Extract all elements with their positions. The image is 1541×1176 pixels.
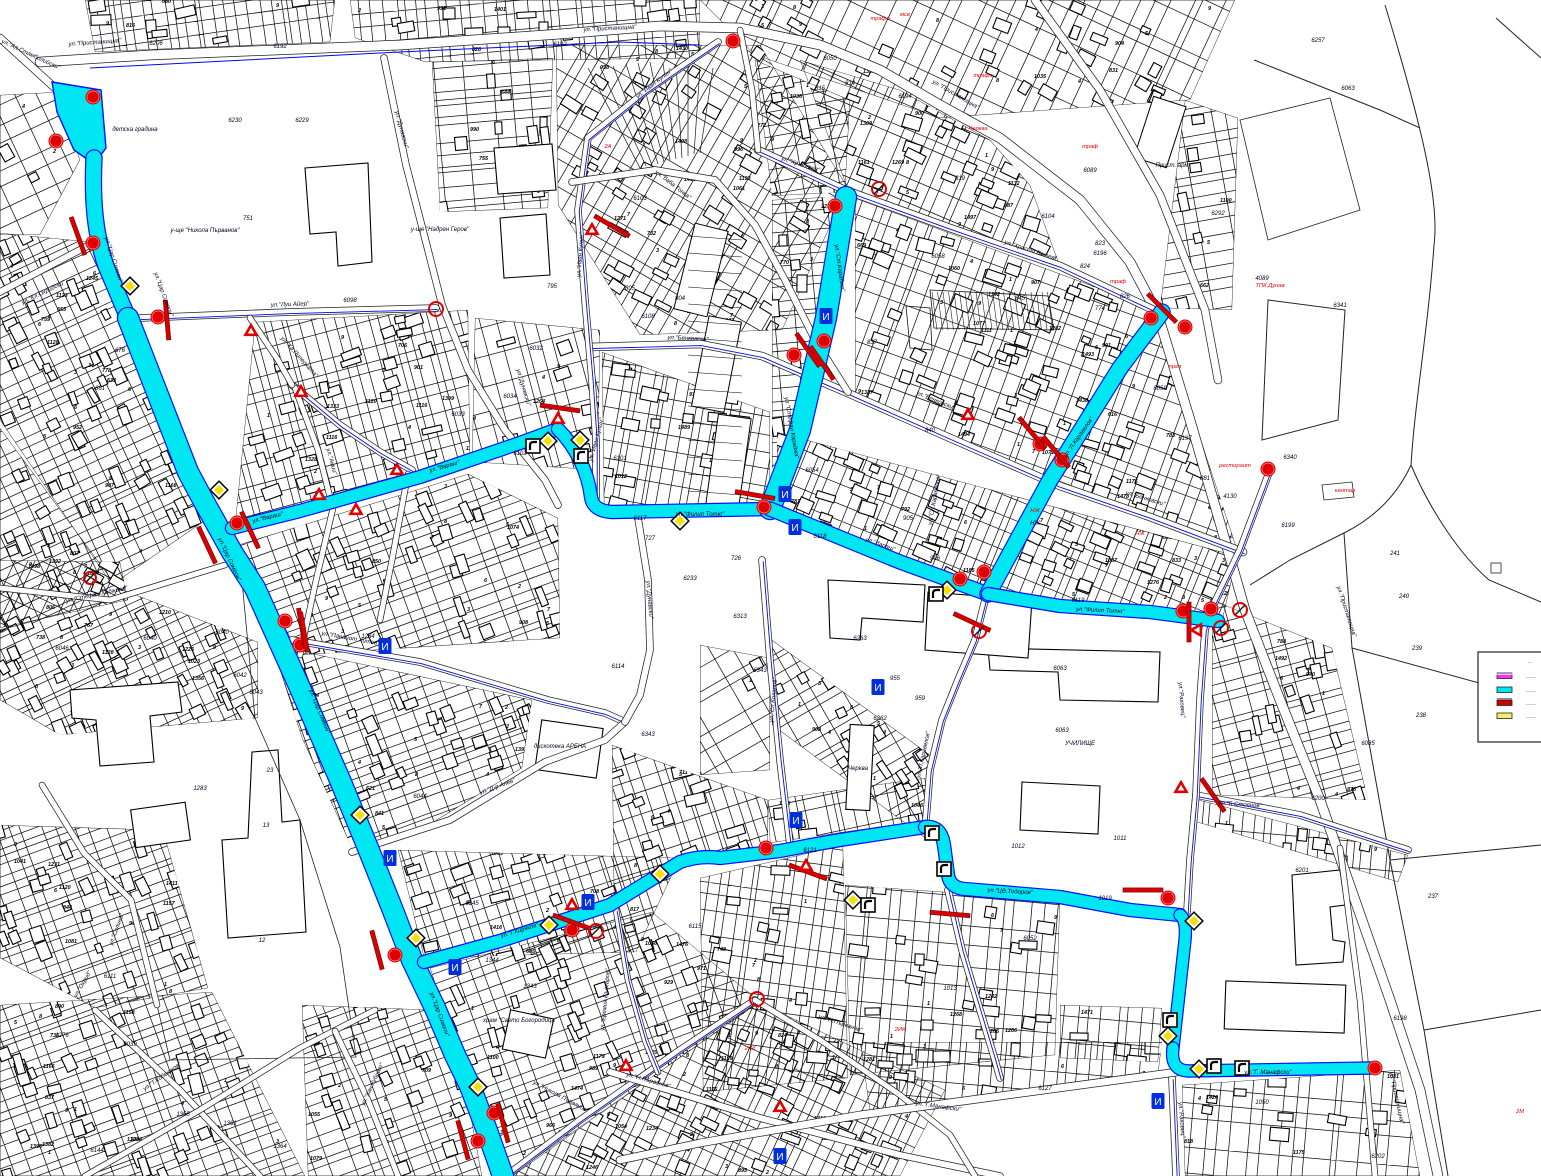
- svg-text:4: 4: [541, 375, 545, 381]
- svg-text:783: 783: [1166, 433, 1175, 439]
- svg-text:6034: 6034: [503, 394, 517, 400]
- svg-text:1242: 1242: [985, 994, 997, 1000]
- svg-text:6042: 6042: [233, 673, 247, 679]
- svg-text:1: 1: [985, 153, 988, 159]
- svg-text:1023: 1023: [188, 659, 200, 665]
- svg-text:4: 4: [1296, 786, 1300, 792]
- svg-text:876: 876: [1347, 787, 1357, 793]
- svg-text:239: 239: [1411, 646, 1423, 652]
- svg-text:4: 4: [357, 760, 361, 766]
- svg-text:900: 900: [915, 111, 924, 117]
- svg-text:1234: 1234: [646, 1126, 658, 1132]
- svg-text:6341: 6341: [1333, 303, 1346, 309]
- svg-text:1157: 1157: [163, 901, 176, 907]
- svg-text:8: 8: [755, 0, 758, 3]
- svg-text:8: 8: [775, 1064, 778, 1070]
- svg-text:6197: 6197: [1178, 436, 1192, 442]
- svg-text:1309: 1309: [860, 121, 872, 127]
- svg-text:996: 996: [734, 147, 744, 153]
- svg-text:6102: 6102: [513, 451, 527, 457]
- svg-text:807: 807: [70, 551, 80, 557]
- svg-text:616: 616: [1108, 412, 1118, 418]
- svg-text:И: И: [451, 963, 458, 974]
- svg-text:1036: 1036: [790, 94, 803, 100]
- svg-text:1245: 1245: [86, 276, 99, 282]
- svg-text:2: 2: [1163, 595, 1167, 601]
- svg-text:8: 8: [996, 78, 999, 84]
- svg-text:6111: 6111: [104, 974, 116, 980]
- svg-text:4: 4: [1034, 27, 1038, 33]
- svg-text:1282: 1282: [1049, 326, 1061, 332]
- svg-text:1056: 1056: [645, 941, 658, 947]
- svg-text:1492: 1492: [1275, 656, 1287, 662]
- svg-text:1132: 1132: [1008, 181, 1020, 187]
- svg-text:3: 3: [467, 607, 470, 613]
- svg-text:Прист. арм: Прист. арм: [1155, 163, 1188, 169]
- svg-text:816: 816: [126, 23, 136, 29]
- svg-text:1128: 1128: [47, 340, 59, 346]
- svg-text:6040: 6040: [143, 636, 157, 642]
- svg-text:1: 1: [1017, 442, 1020, 448]
- svg-text:9: 9: [29, 562, 32, 568]
- svg-text:2: 2: [689, 1132, 693, 1138]
- svg-text:1011: 1011: [1114, 836, 1127, 842]
- svg-text:6198: 6198: [1393, 1016, 1407, 1022]
- svg-text:2М: 2М: [1515, 1109, 1524, 1115]
- svg-text:241: 241: [1389, 551, 1400, 557]
- svg-text:6343: 6343: [753, 668, 767, 674]
- svg-text:844: 844: [63, 905, 72, 911]
- svg-text:9: 9: [755, 1031, 758, 1037]
- svg-text:841: 841: [375, 811, 384, 817]
- svg-text:738: 738: [36, 635, 45, 641]
- svg-text:905: 905: [903, 516, 914, 522]
- svg-text:1: 1: [1322, 691, 1325, 697]
- svg-text:1471: 1471: [1081, 1010, 1093, 1016]
- svg-text:4: 4: [827, 730, 831, 736]
- svg-text:1489: 1489: [678, 425, 690, 431]
- svg-text:8: 8: [415, 772, 418, 778]
- svg-text:прев: прев: [1169, 364, 1182, 370]
- svg-text:3: 3: [138, 645, 141, 651]
- svg-text:3: 3: [1222, 558, 1225, 564]
- svg-text:кантар: кантар: [1335, 488, 1356, 494]
- svg-text:1493: 1493: [1082, 352, 1094, 358]
- svg-text:1309: 1309: [442, 396, 454, 402]
- svg-text:2: 2: [867, 115, 871, 121]
- svg-text:дискотека АРЕНА: дискотека АРЕНА: [534, 744, 586, 750]
- svg-text:8: 8: [60, 635, 63, 641]
- svg-text:6054: 6054: [805, 468, 819, 474]
- svg-text:2ИК: 2ИК: [744, 1046, 756, 1052]
- svg-text:831: 831: [1109, 68, 1118, 74]
- svg-text:991: 991: [1102, 343, 1111, 349]
- svg-text:1168: 1168: [165, 483, 177, 489]
- svg-text:621: 621: [366, 786, 375, 792]
- svg-text:Черква: Черква: [968, 126, 988, 132]
- svg-text:6119: 6119: [1072, 598, 1086, 604]
- svg-text:И: И: [776, 1152, 783, 1163]
- svg-text:989: 989: [589, 1066, 598, 1072]
- svg-text:1: 1: [267, 413, 270, 419]
- svg-text:1: 1: [224, 1078, 227, 1084]
- svg-text:мсв: мсв: [900, 12, 910, 18]
- svg-text:8: 8: [686, 1053, 689, 1059]
- svg-text:4: 4: [21, 104, 25, 110]
- svg-text:9: 9: [213, 645, 216, 651]
- svg-text:3: 3: [382, 368, 385, 374]
- svg-text:1185: 1185: [963, 568, 976, 574]
- svg-text:6058: 6058: [931, 254, 945, 260]
- svg-text:9: 9: [613, 1063, 616, 1069]
- svg-text:1: 1: [48, 1150, 51, 1156]
- svg-text:1050: 1050: [1255, 1100, 1269, 1106]
- svg-text:9: 9: [1054, 915, 1057, 921]
- svg-text:2: 2: [522, 1151, 526, 1157]
- svg-text:1210: 1210: [159, 610, 171, 616]
- svg-text:УЧИЛИЩЕ: УЧИЛИЩЕ: [1064, 741, 1096, 747]
- svg-text:907: 907: [105, 483, 115, 489]
- svg-text:3: 3: [656, 248, 659, 254]
- svg-text:трафо: трафо: [870, 16, 890, 22]
- svg-text:1: 1: [74, 1107, 77, 1113]
- svg-text:644: 644: [501, 90, 510, 96]
- svg-text:1: 1: [927, 1001, 930, 1007]
- svg-text:1286: 1286: [1005, 1028, 1018, 1034]
- svg-text:6121: 6121: [803, 848, 816, 854]
- svg-text:1382: 1382: [42, 1142, 54, 1148]
- svg-text:9: 9: [241, 706, 244, 712]
- svg-text:814: 814: [845, 81, 856, 87]
- svg-text:3: 3: [74, 370, 77, 376]
- svg-text:9: 9: [771, 137, 774, 143]
- svg-text:8: 8: [936, 18, 939, 24]
- svg-text:1328: 1328: [305, 457, 317, 463]
- svg-text:1179: 1179: [593, 1054, 605, 1060]
- svg-text:3: 3: [500, 1130, 503, 1136]
- svg-text:4: 4: [1334, 792, 1338, 798]
- svg-text:1120: 1120: [59, 885, 71, 891]
- svg-text:Черква: Черква: [848, 766, 869, 772]
- svg-text:8: 8: [634, 863, 637, 869]
- svg-text:И: И: [381, 642, 388, 653]
- svg-text:9: 9: [1374, 847, 1377, 853]
- svg-text:2ИК: 2ИК: [894, 1027, 906, 1033]
- svg-text:6196: 6196: [1093, 251, 1107, 257]
- svg-text:8: 8: [557, 938, 560, 944]
- svg-text:676: 676: [115, 348, 126, 354]
- svg-text:907: 907: [1031, 280, 1041, 286]
- svg-text:6233: 6233: [683, 576, 697, 582]
- svg-text:1: 1: [890, 1034, 893, 1040]
- svg-text:795: 795: [547, 284, 558, 290]
- svg-text:6103: 6103: [633, 196, 647, 202]
- svg-text:1231: 1231: [48, 862, 60, 868]
- svg-text:6194: 6194: [898, 94, 912, 100]
- svg-text:661: 661: [95, 386, 105, 392]
- svg-text:2: 2: [337, 1083, 341, 1089]
- svg-text:4: 4: [9, 264, 13, 270]
- svg-text:1035: 1035: [1034, 74, 1047, 80]
- svg-text:1161: 1161: [858, 160, 870, 166]
- svg-text:12: 12: [259, 938, 266, 944]
- svg-text:6046: 6046: [55, 646, 69, 652]
- svg-text:...: ...: [1528, 659, 1532, 665]
- svg-text:.......: .......: [1526, 688, 1536, 694]
- svg-text:6229: 6229: [295, 118, 309, 124]
- svg-text:2: 2: [765, 1170, 769, 1176]
- svg-text:8: 8: [793, 5, 796, 11]
- svg-text:4: 4: [1077, 79, 1081, 85]
- svg-text:6118: 6118: [814, 534, 828, 540]
- svg-text:840: 840: [925, 428, 936, 434]
- svg-text:9: 9: [109, 612, 112, 618]
- svg-text:1: 1: [804, 899, 807, 905]
- svg-text:2: 2: [682, 1072, 686, 1078]
- svg-text:6117: 6117: [634, 516, 648, 522]
- svg-text:1474: 1474: [571, 1086, 583, 1092]
- svg-text:И: И: [781, 490, 788, 501]
- svg-text:751: 751: [243, 216, 253, 222]
- svg-text:4: 4: [138, 549, 142, 555]
- svg-text:1438: 1438: [1076, 398, 1088, 404]
- svg-text:1356: 1356: [192, 676, 205, 682]
- svg-text:1: 1: [806, 83, 809, 89]
- svg-text:6202: 6202: [1371, 1154, 1385, 1160]
- svg-text:6040: 6040: [215, 630, 229, 636]
- svg-text:9: 9: [641, 937, 644, 943]
- svg-text:4: 4: [1197, 1096, 1201, 1102]
- svg-text:3: 3: [850, 487, 853, 493]
- svg-text:4: 4: [788, 998, 792, 1004]
- svg-text:6192: 6192: [273, 44, 287, 50]
- svg-text:1271: 1271: [614, 216, 626, 222]
- svg-text:833: 833: [1172, 558, 1181, 564]
- svg-text:991: 991: [437, 6, 446, 12]
- svg-text:1: 1: [873, 776, 876, 782]
- svg-text:815: 815: [815, 86, 826, 92]
- svg-text:9: 9: [65, 1108, 68, 1114]
- svg-text:1364: 1364: [273, 1144, 287, 1150]
- svg-text:трафо: трафо: [973, 73, 993, 79]
- svg-text:1: 1: [164, 982, 167, 988]
- svg-text:817: 817: [630, 907, 640, 913]
- svg-text:819: 819: [955, 176, 966, 182]
- svg-text:3: 3: [1014, 393, 1017, 399]
- svg-text:8: 8: [73, 570, 76, 576]
- svg-text:9: 9: [740, 138, 743, 144]
- svg-text:895: 895: [738, 1168, 748, 1174]
- svg-text:6059: 6059: [1153, 386, 1167, 392]
- svg-text:824: 824: [778, 1033, 787, 1039]
- svg-text:6033: 6033: [451, 412, 465, 418]
- svg-text:3: 3: [940, 300, 943, 306]
- svg-text:1283: 1283: [193, 786, 207, 792]
- svg-text:759: 759: [41, 317, 50, 323]
- svg-text:6063: 6063: [1055, 728, 1069, 734]
- svg-text:1416: 1416: [490, 925, 503, 931]
- svg-text:970: 970: [1306, 672, 1315, 678]
- svg-text:1: 1: [1063, 421, 1066, 427]
- svg-text:6257: 6257: [1311, 38, 1325, 44]
- svg-text:4130: 4130: [1223, 494, 1237, 500]
- svg-text:823: 823: [1095, 241, 1106, 247]
- svg-text:9: 9: [889, 1075, 892, 1081]
- svg-text:1158: 1158: [123, 1010, 135, 1016]
- svg-text:И: И: [1154, 1097, 1161, 1108]
- svg-text:9: 9: [341, 335, 344, 341]
- svg-text:1012: 1012: [615, 474, 627, 480]
- svg-text:1166: 1166: [43, 1064, 56, 1070]
- svg-text:1100: 1100: [487, 1055, 499, 1061]
- svg-text:9: 9: [1208, 6, 1211, 12]
- svg-text:1269: 1269: [892, 160, 904, 166]
- svg-text:952: 952: [73, 425, 82, 431]
- svg-text:929: 929: [664, 980, 673, 986]
- svg-text:6044: 6044: [413, 794, 427, 800]
- svg-text:8: 8: [674, 321, 677, 327]
- svg-text:966: 966: [546, 1123, 556, 1129]
- svg-text:1396: 1396: [30, 1144, 43, 1150]
- svg-text:И: И: [822, 312, 829, 323]
- svg-text:4: 4: [666, 809, 670, 815]
- svg-text:837: 837: [867, 340, 878, 346]
- svg-text:908: 908: [812, 727, 821, 733]
- svg-text:4: 4: [485, 772, 489, 778]
- svg-text:1284: 1284: [361, 634, 375, 640]
- svg-text:.......: .......: [1526, 701, 1536, 707]
- svg-text:И: И: [874, 683, 881, 694]
- svg-text:И: И: [386, 854, 393, 865]
- svg-text:6144: 6144: [90, 1148, 104, 1154]
- svg-text:1175: 1175: [1293, 1150, 1306, 1156]
- svg-text:805: 805: [625, 286, 636, 292]
- svg-text:4: 4: [612, 925, 616, 931]
- svg-text:732: 732: [647, 231, 656, 237]
- svg-text:237: 237: [1427, 894, 1439, 900]
- svg-text:6343: 6343: [641, 732, 655, 738]
- svg-text:6230: 6230: [228, 118, 242, 124]
- svg-text:3: 3: [1194, 556, 1197, 562]
- svg-text:2: 2: [52, 149, 56, 155]
- svg-text:9: 9: [799, 22, 802, 28]
- svg-text:1: 1: [864, 526, 867, 532]
- svg-text:6313: 6313: [733, 614, 747, 620]
- svg-text:8: 8: [39, 1014, 42, 1020]
- svg-text:788: 788: [1277, 639, 1286, 645]
- svg-text:9: 9: [325, 596, 328, 602]
- svg-text:6104: 6104: [1041, 214, 1055, 220]
- svg-text:845: 845: [1015, 296, 1026, 302]
- svg-text:3: 3: [725, 1164, 728, 1170]
- svg-text:774: 774: [1095, 306, 1106, 312]
- svg-text:904: 904: [1115, 41, 1124, 47]
- svg-text:824: 824: [1080, 264, 1091, 270]
- svg-text:НЖ: НЖ: [1030, 521, 1040, 527]
- svg-text:240: 240: [1398, 594, 1410, 600]
- svg-text:1401: 1401: [494, 7, 506, 13]
- svg-text:ул."Луи Айер": ул."Луи Айер": [270, 300, 310, 308]
- svg-text:1019: 1019: [1098, 896, 1112, 902]
- svg-text:6050: 6050: [823, 56, 837, 62]
- svg-text:3: 3: [47, 543, 50, 549]
- svg-text:6043: 6043: [249, 690, 263, 696]
- svg-text:806: 806: [46, 605, 56, 611]
- svg-text:755: 755: [479, 156, 489, 162]
- svg-text:6199: 6199: [1281, 523, 1295, 529]
- svg-text:1120: 1120: [365, 399, 377, 405]
- svg-text:6039: 6039: [123, 1042, 137, 1048]
- svg-text:9: 9: [557, 364, 560, 370]
- svg-text:1: 1: [471, 1006, 474, 1012]
- svg-text:6089: 6089: [1083, 168, 1097, 174]
- svg-text:1494: 1494: [958, 432, 970, 438]
- svg-text:ТПК Дунав: ТПК Дунав: [1255, 283, 1284, 289]
- svg-text:1344: 1344: [485, 958, 499, 964]
- svg-text:6200: 6200: [1311, 796, 1325, 802]
- svg-text:826: 826: [1120, 294, 1131, 300]
- svg-text:767: 767: [84, 623, 94, 629]
- svg-text:И: И: [792, 816, 799, 827]
- svg-text:792: 792: [901, 507, 910, 513]
- svg-text:ресторант: ресторант: [1218, 463, 1251, 469]
- svg-text:НЖ: НЖ: [1135, 531, 1145, 537]
- svg-text:9: 9: [978, 301, 981, 307]
- svg-text:850: 850: [372, 559, 381, 565]
- svg-text:3: 3: [14, 842, 17, 848]
- svg-text:6292: 6292: [1211, 211, 1225, 217]
- svg-text:908: 908: [519, 620, 528, 626]
- svg-text:4089: 4089: [1255, 276, 1269, 282]
- svg-text:633: 633: [107, 378, 116, 384]
- svg-text:2: 2: [504, 705, 508, 711]
- svg-text:709: 709: [422, 1068, 431, 1074]
- svg-text:6108: 6108: [641, 314, 655, 320]
- svg-text:1128: 1128: [102, 650, 114, 656]
- svg-text:955: 955: [890, 676, 901, 682]
- svg-text:4: 4: [180, 1101, 184, 1107]
- svg-text:детска градина: детска градина: [112, 127, 158, 133]
- svg-text:6063: 6063: [1341, 86, 1355, 92]
- svg-text:1281: 1281: [863, 1057, 875, 1063]
- svg-text:906: 906: [930, 556, 941, 562]
- svg-text:4: 4: [407, 425, 411, 431]
- svg-text:у-ще "Никола Първанов": у-ще "Никола Първанов": [170, 228, 241, 234]
- svg-text:8: 8: [850, 705, 853, 711]
- svg-text:3: 3: [444, 484, 447, 490]
- svg-text:1476: 1476: [676, 942, 689, 948]
- svg-text:1013: 1013: [943, 986, 957, 992]
- svg-text:1100: 1100: [1220, 198, 1232, 204]
- svg-text:3: 3: [88, 363, 91, 369]
- svg-text:680: 680: [162, 0, 171, 5]
- svg-text:1268: 1268: [950, 1012, 962, 1018]
- svg-text:6145: 6145: [465, 901, 479, 907]
- svg-text:НЖ: НЖ: [1030, 508, 1040, 514]
- svg-text:ул."Филип Тотю": ул."Филип Тотю": [675, 512, 725, 518]
- svg-text:4: 4: [882, 730, 886, 736]
- svg-text:1226: 1226: [182, 647, 195, 653]
- svg-text:И: И: [791, 523, 798, 534]
- svg-text:8: 8: [1182, 595, 1185, 601]
- svg-text:1116: 1116: [326, 435, 338, 441]
- svg-text:3: 3: [818, 681, 821, 687]
- svg-text:1497: 1497: [964, 215, 977, 221]
- svg-text:770: 770: [780, 260, 789, 266]
- svg-text:1074: 1074: [507, 525, 519, 531]
- svg-text:1193: 1193: [739, 176, 751, 182]
- svg-text:1355: 1355: [176, 1112, 190, 1118]
